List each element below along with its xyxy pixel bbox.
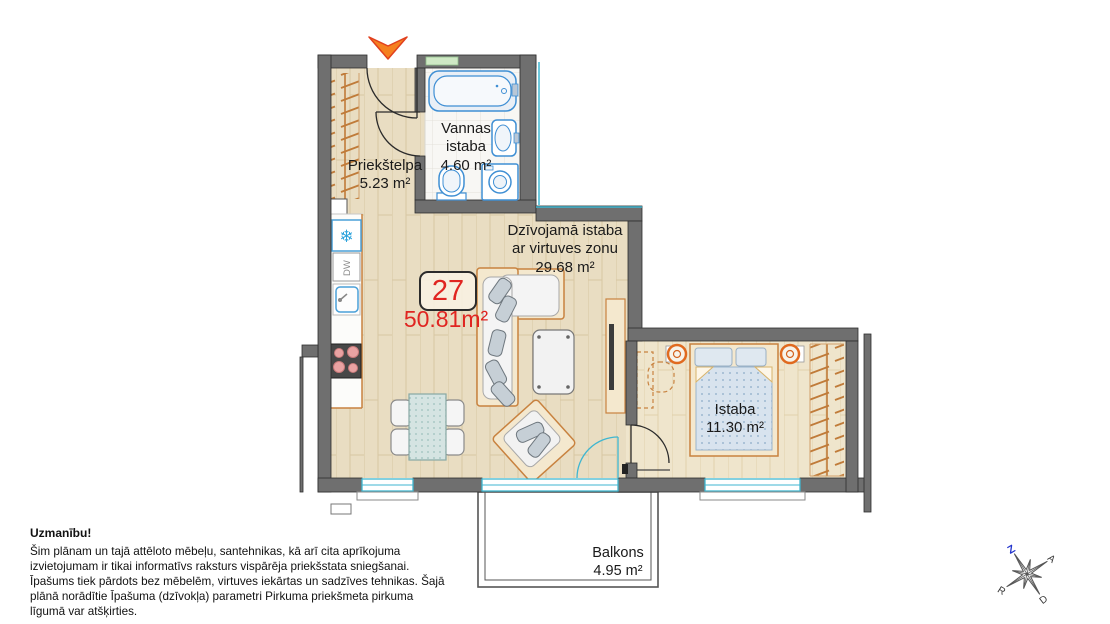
window-sill-1 (357, 492, 418, 500)
living-room-name-line2: ar virtuves zonu (477, 240, 653, 258)
bedroom-label: Istaba 11.30 m² (675, 401, 795, 438)
window-sill-2 (700, 492, 805, 500)
vent-shaft (426, 57, 458, 65)
snowflake-icon: ❄ (339, 227, 353, 246)
bedroom-area: 11.30 m² (675, 419, 795, 437)
compass-west: R (995, 585, 1007, 598)
dishwasher-label: DW (342, 260, 353, 276)
hallway-label: Priekštelpa 5.23 m² (323, 157, 447, 194)
apartment-number: 27 (432, 275, 464, 308)
apartment-total-area: 50.81m² (394, 306, 498, 333)
exterior-detail-box (331, 504, 351, 514)
bedroom-wardrobe (810, 344, 844, 476)
bathtub (429, 71, 518, 111)
entrance-arrow-icon (369, 37, 407, 59)
hallway-name: Priekštelpa (323, 157, 447, 175)
compass-north: Z (1006, 543, 1018, 557)
disclaimer-title: Uzmanību! (30, 526, 448, 542)
stove (330, 344, 361, 378)
bed (690, 344, 778, 456)
living-room-area: 29.68 m² (477, 259, 653, 277)
apartment-number-badge: 27 (419, 271, 477, 311)
tv-unit (606, 299, 625, 413)
living-room-name-line1: Dzīvojamā istaba (477, 222, 653, 240)
door-stop (622, 464, 628, 474)
hallway-area: 5.23 m² (323, 175, 447, 193)
floor-plan-page: ❄ DW (0, 0, 1110, 624)
kitchen-sink (333, 284, 360, 315)
neighbor-wall (864, 334, 871, 512)
kitchen-run: ❄ DW (330, 214, 362, 408)
facade-glazing-line (536, 62, 642, 207)
tv (609, 324, 614, 390)
bathroom-name: Vannas istaba (429, 120, 503, 157)
windows (331, 479, 805, 514)
bedroom-name: Istaba (675, 401, 795, 419)
disclaimer: Uzmanību! Šim plānam un tajā attēloto mē… (30, 526, 448, 620)
compass-east: A (1045, 553, 1057, 566)
balcony-label: Balkons 4.95 m² (556, 545, 680, 580)
living-room-label: Dzīvojamā istaba ar virtuves zonu 29.68 … (477, 222, 653, 277)
hallway-wardrobe (330, 73, 359, 219)
compass-south: D (1038, 594, 1050, 607)
coffee-table (533, 330, 574, 394)
balcony-name: Balkons (556, 545, 680, 563)
dining-table (409, 394, 446, 460)
balcony-area: 4.95 m² (556, 563, 680, 581)
disclaimer-body: Šim plānam un tajā attēloto mēbeļu, sant… (30, 544, 448, 620)
compass-rose-icon: Z A D R (994, 541, 1060, 607)
